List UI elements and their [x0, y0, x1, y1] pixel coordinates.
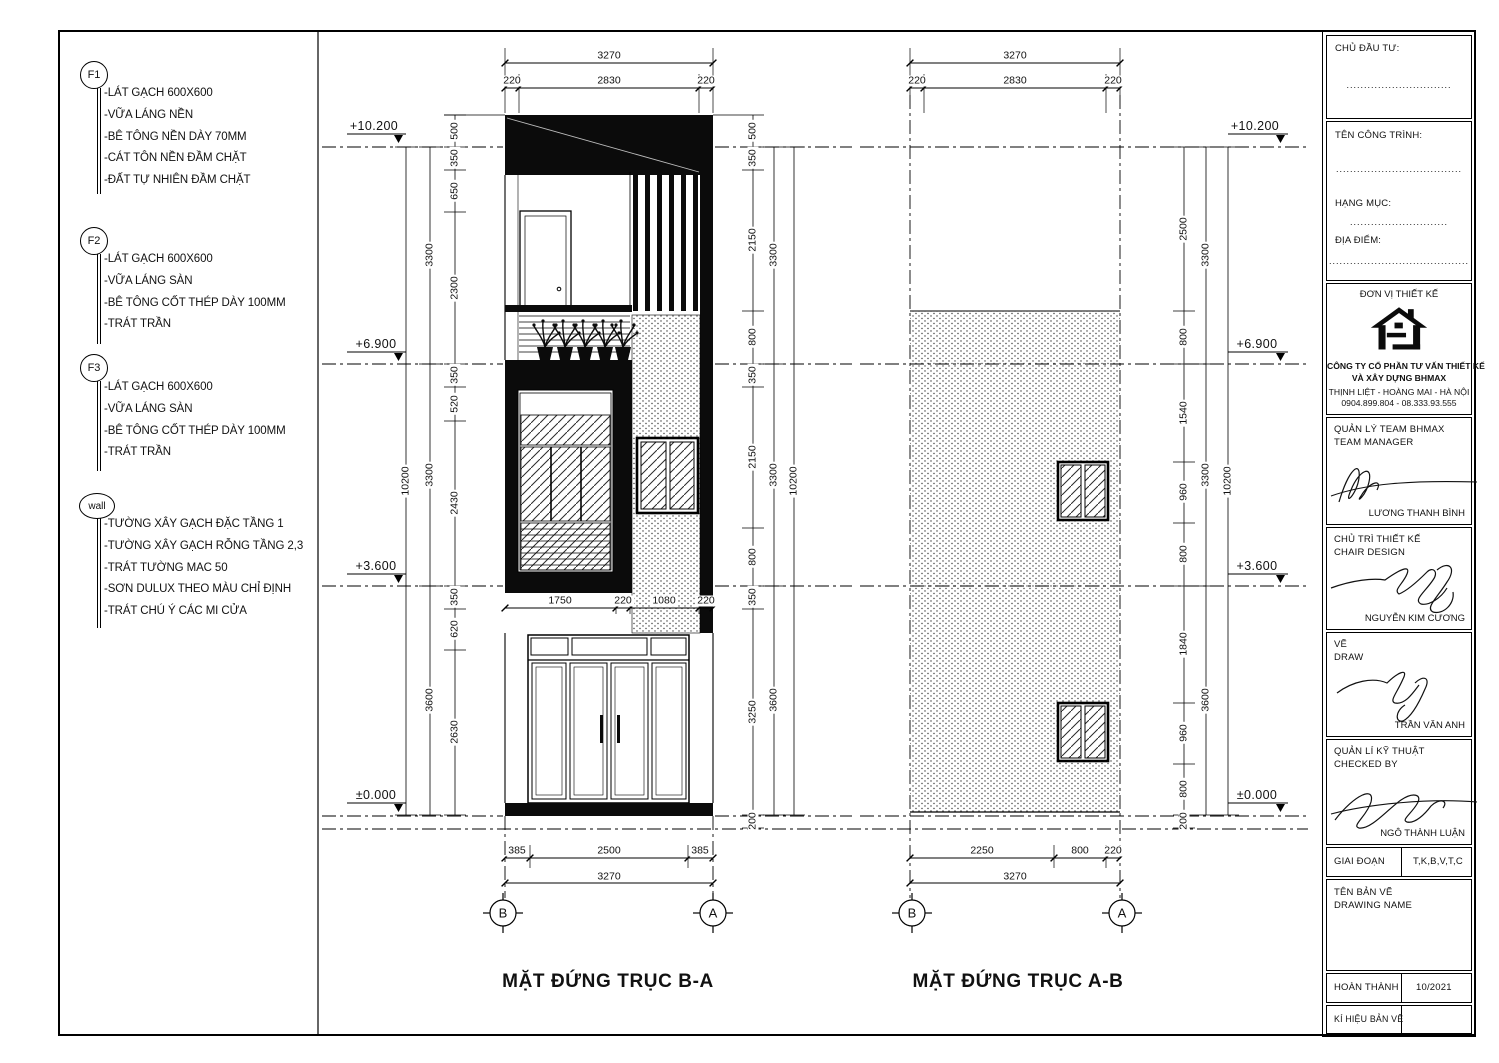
note-line: -ĐẤT TỰ NHIÊN ĐẦM CHẶT	[104, 174, 250, 196]
dim-label: 220	[906, 76, 928, 87]
dim-label: 650	[450, 180, 461, 202]
dim-label: 3270	[595, 872, 622, 883]
drawing-sheet: { "notes": { "f1": {"label":"F1","items"…	[0, 0, 1499, 1063]
level-label: ±0.000	[1237, 788, 1278, 802]
dim-label: 350	[748, 364, 759, 386]
tb-completed-label: HOÀN THÀNH	[1334, 982, 1399, 993]
dim-label: 220	[695, 76, 717, 87]
note-line: -BÊ TÔNG NỀN DÀY 70MM	[104, 131, 250, 153]
signature-draw	[1333, 665, 1473, 723]
dim-label: 3270	[1001, 51, 1028, 62]
signature-chair	[1329, 558, 1479, 616]
dim-label: 220	[1102, 846, 1124, 857]
tb-role-title: CHỦ TRÌ THIẾT KẾ	[1334, 534, 1421, 545]
tb-company-line1: CÔNG TY CỔ PHẦN TƯ VẤN THIẾT KẾ	[1327, 361, 1471, 371]
dim-label: 2830	[1001, 76, 1028, 87]
note-bubble-f3: F3	[80, 354, 108, 382]
elevation-title-ba: MẶT ĐỨNG TRỤC B-A	[502, 971, 714, 993]
note-line: -LÁT GẠCH 600X600	[104, 381, 286, 403]
dim-label: 500	[748, 120, 759, 142]
dim-label: 350	[450, 586, 461, 608]
tb-dotted-field: ..............................	[1327, 80, 1471, 90]
tb-completed-value: 10/2021	[1416, 982, 1452, 993]
bhmax-logo	[1367, 303, 1431, 355]
dim-label: 350	[450, 147, 461, 169]
dim-label: 800	[1179, 543, 1190, 565]
note-bubble-wall: wall	[79, 493, 115, 519]
tb-project-box: TÊN CÔNG TRÌNH: ........................…	[1326, 121, 1472, 281]
note-line: -VỮA LÁNG NỀN	[104, 109, 250, 131]
dim-label: 1080	[650, 596, 677, 607]
dim-label: 800	[1179, 326, 1190, 348]
tb-owner-label: CHỦ ĐẦU TƯ:	[1335, 43, 1400, 54]
dim-label: 10200	[789, 464, 800, 497]
level-label: +6.900	[1237, 337, 1278, 351]
dim-label: 3300	[769, 241, 780, 268]
tb-role-manager-box: QUẢN LÝ TEAM BHMAX TEAM MANAGER LƯƠNG TH…	[1326, 417, 1472, 525]
elevation-title-ab: MẶT ĐỨNG TRỤC A-B	[912, 971, 1123, 993]
note-line: -TƯỜNG XÂY GẠCH RỖNG TẦNG 2,3	[104, 540, 303, 562]
dim-label: 520	[450, 393, 461, 415]
dim-label: 2250	[968, 846, 995, 857]
note-line: -VỮA LÁNG SÀN	[104, 403, 286, 425]
note-list-f3: -LÁT GẠCH 600X600 -VỮA LÁNG SÀN -BÊ TÔNG…	[104, 381, 286, 468]
dim-label: 800	[1069, 846, 1091, 857]
note-line: -TRÁT CHÚ Ý CÁC MI CỬA	[104, 605, 303, 627]
tb-phone: 0904.899.804 - 08.333.93.555	[1327, 398, 1471, 408]
dim-label: 385	[689, 846, 711, 857]
tb-drawing-name-box: TÊN BẢN VẼ DRAWING NAME	[1326, 879, 1472, 971]
leader-line	[97, 518, 101, 628]
tb-dotted-field: ............................	[1327, 217, 1471, 227]
dim-label: 3600	[1201, 686, 1212, 713]
tb-role-subtitle: DRAW	[1334, 652, 1363, 663]
level-label: +10.200	[350, 119, 398, 133]
note-line: -TRÁT TƯỜNG MAC 50	[104, 562, 303, 584]
dim-label: 2300	[450, 274, 461, 301]
dim-label: 2150	[748, 226, 759, 253]
note-line: -LÁT GẠCH 600X600	[104, 253, 286, 275]
note-line: -CÁT TÔN NỀN ĐẦM CHẶT	[104, 152, 250, 174]
level-label: +6.900	[356, 337, 397, 351]
note-line: -LÁT GẠCH 600X600	[104, 87, 250, 109]
dim-label: 3300	[1201, 241, 1212, 268]
note-line: -TRÁT TRẦN	[104, 446, 286, 468]
leader-line	[97, 88, 101, 194]
tb-role-title: VẼ	[1334, 639, 1347, 650]
dim-label: 800	[1179, 778, 1190, 800]
note-list-f1: -LÁT GẠCH 600X600 -VỮA LÁNG NỀN -BÊ TÔNG…	[104, 87, 250, 196]
dim-label: 350	[450, 364, 461, 386]
leader-line	[97, 254, 101, 344]
tb-symbol-label: KÍ HIỆU BẢN VẼ	[1334, 1014, 1403, 1024]
level-label: +3.600	[1237, 559, 1278, 573]
level-label: +10.200	[1231, 119, 1279, 133]
tb-role-subtitle: TEAM MANAGER	[1334, 437, 1413, 448]
note-line: -VỮA LÁNG SÀN	[104, 275, 286, 297]
level-label: ±0.000	[356, 788, 397, 802]
dim-label: 2500	[595, 846, 622, 857]
tb-role-subtitle: CHECKED BY	[1334, 759, 1398, 770]
dim-label: 350	[748, 147, 759, 169]
signature-manager	[1329, 450, 1479, 510]
dim-label: 960	[1179, 481, 1190, 503]
tb-dotted-field: ........................................	[1327, 256, 1471, 266]
dim-label: 200	[1179, 810, 1190, 832]
dim-label: 3270	[1001, 872, 1028, 883]
note-bubble-f1: F1	[80, 61, 108, 89]
tb-project-label: TÊN CÔNG TRÌNH:	[1335, 130, 1422, 141]
tb-item-label: HẠNG MỤC:	[1335, 198, 1391, 209]
dim-label: 200	[748, 810, 759, 832]
signature-checked	[1329, 772, 1479, 830]
note-line: -BÊ TÔNG CỐT THÉP DÀY 100MM	[104, 297, 286, 319]
note-list-wall: -TƯỜNG XÂY GẠCH ĐẶC TẦNG 1 -TƯỜNG XÂY GẠ…	[104, 518, 303, 627]
tb-stage-value: T,K,B,V,T,C	[1413, 856, 1463, 867]
note-line: -TƯỜNG XÂY GẠCH ĐẶC TẦNG 1	[104, 518, 303, 540]
note-list-f2: -LÁT GẠCH 600X600 -VỮA LÁNG SÀN -BÊ TÔNG…	[104, 253, 286, 340]
dim-label: 3300	[1201, 461, 1212, 488]
dim-label: 2150	[748, 443, 759, 470]
dim-label: 2630	[450, 718, 461, 745]
tb-role-title: QUẢN LÝ TEAM BHMAX	[1334, 424, 1445, 435]
tb-drawing-name-label-vi: TÊN BẢN VẼ	[1334, 887, 1393, 898]
dim-label: 1840	[1179, 630, 1190, 657]
dim-label: 10200	[401, 464, 412, 497]
tb-drawing-name-label-en: DRAWING NAME	[1334, 900, 1412, 911]
tb-role-draw-box: VẼ DRAW TRẦN VĂN ANH	[1326, 632, 1472, 737]
dim-label: 220	[695, 596, 717, 607]
dim-label: 220	[612, 596, 634, 607]
tb-completed-row: HOÀN THÀNH 10/2021	[1326, 973, 1472, 1003]
note-line: -SƠN DULUX THEO MÀU CHỈ ĐỊNH	[104, 583, 303, 605]
tb-owner-box: CHỦ ĐẦU TƯ: ............................…	[1326, 35, 1472, 119]
grid-bubble-label: B	[908, 906, 917, 921]
tb-company-line2: VÀ XÂY DỰNG BHMAX	[1327, 373, 1471, 383]
dim-label: 220	[1102, 76, 1124, 87]
dim-label: 220	[501, 76, 523, 87]
grid-bubble-label: B	[499, 906, 508, 921]
tb-symbol-row: KÍ HIỆU BẢN VẼ	[1326, 1005, 1472, 1034]
level-label: +3.600	[356, 559, 397, 573]
tb-cell-divider	[1401, 974, 1402, 1002]
dim-label: 1540	[1179, 399, 1190, 426]
dim-label: 3250	[748, 698, 759, 725]
tb-role-title: QUẢN LÍ KỸ THUẬT	[1334, 746, 1425, 757]
tb-dotted-field: ....................................	[1327, 164, 1471, 174]
dim-label: 960	[1179, 722, 1190, 744]
tb-stage-label: GIAI ĐOẠN	[1334, 856, 1385, 867]
dim-label: 500	[450, 120, 461, 142]
dim-label: 3600	[769, 686, 780, 713]
note-line: -TRÁT TRẦN	[104, 318, 286, 340]
dim-label: 3300	[425, 241, 436, 268]
dim-label: 385	[506, 846, 528, 857]
dim-label: 10200	[1223, 464, 1234, 497]
dim-label: 3300	[769, 461, 780, 488]
tb-role-chair-box: CHỦ TRÌ THIẾT KẾ CHAIR DESIGN NGUYỄN KIM…	[1326, 527, 1472, 630]
note-line: -BÊ TÔNG CỐT THÉP DÀY 100MM	[104, 425, 286, 447]
dim-label: 800	[748, 326, 759, 348]
note-bubble-f2: F2	[80, 227, 108, 255]
tb-stage-row: GIAI ĐOẠN T,K,B,V,T,C	[1326, 847, 1472, 877]
dim-label: 1750	[546, 596, 573, 607]
dim-label: 800	[748, 546, 759, 568]
grid-bubble-label: A	[1118, 906, 1127, 921]
tb-cell-divider	[1401, 848, 1402, 876]
tb-role-subtitle: CHAIR DESIGN	[1334, 547, 1405, 558]
dim-label: 2830	[595, 76, 622, 87]
dim-label: 3600	[425, 686, 436, 713]
tb-design-unit-label: ĐƠN VỊ THIẾT KẾ	[1327, 289, 1471, 300]
tb-location-label: ĐỊA ĐIỂM:	[1335, 235, 1381, 246]
dim-label: 3300	[425, 461, 436, 488]
dim-label: 350	[748, 586, 759, 608]
dim-label: 620	[450, 618, 461, 640]
dim-label: 2430	[450, 489, 461, 516]
dim-label: 2500	[1179, 215, 1190, 242]
tb-designer-box: ĐƠN VỊ THIẾT KẾ CÔNG TY CỔ PHẦN TƯ VẤN T…	[1326, 283, 1472, 415]
tb-address: THỊNH LIỆT - HOÀNG MAI - HÀ NỘI	[1327, 387, 1471, 397]
grid-bubble-label: A	[709, 906, 718, 921]
tb-role-checked-box: QUẢN LÍ KỸ THUẬT CHECKED BY NGÔ THÀNH LU…	[1326, 739, 1472, 845]
dim-label: 3270	[595, 51, 622, 62]
leader-line	[97, 381, 101, 471]
